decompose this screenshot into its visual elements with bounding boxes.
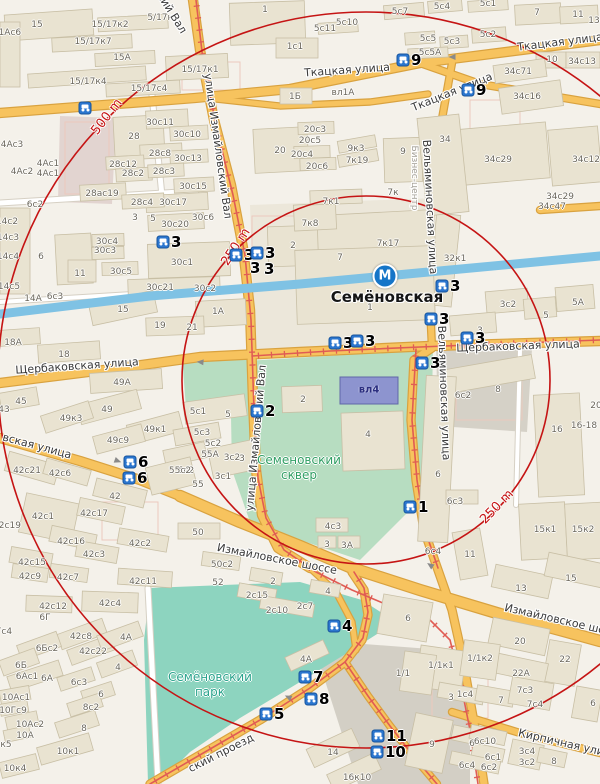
building-number-label: 13 [588, 16, 599, 26]
bus-stop-number: 2 [265, 402, 275, 420]
bus-icon [461, 332, 474, 345]
bus-stop-number: 5 [274, 705, 284, 723]
building-number-label: 20с3 [304, 125, 326, 135]
bus-icon [251, 405, 264, 418]
building-number-label: 42с19 [0, 521, 21, 531]
highlighted-building-label: вл4 [359, 385, 380, 396]
building-number-label: 1 [367, 303, 373, 313]
building-number-label: 9 [400, 147, 406, 157]
building-number-label: 20 [514, 637, 525, 647]
building-number-label: 28с4 [131, 198, 153, 208]
building-number-label: 9к3 [348, 144, 365, 154]
building-number-label: 30с6 [192, 213, 214, 223]
building-number-label: 32к1 [444, 254, 467, 264]
building-number-label: 1с4 [457, 690, 473, 700]
street-name-label: Ткацкая улица [304, 61, 391, 80]
building-number-label: 49 [101, 405, 112, 415]
building-number-label: 3 [239, 454, 245, 464]
oneway-arrow-icon [425, 561, 434, 570]
building-number-label: 6А [41, 674, 53, 684]
building-number-label: 42 [109, 492, 120, 502]
building-number-label: 10 [546, 55, 557, 65]
building-number-label: 5 [543, 311, 549, 321]
building-number-label: 5с2 [205, 439, 221, 449]
bus-stop-number: 3 [265, 244, 275, 262]
building-number-label: 1с1 [287, 42, 303, 52]
building-number-label: 28с2 [122, 169, 144, 179]
building-number-label: 4А [120, 633, 132, 643]
oneway-arrow-icon [114, 457, 123, 465]
bus-icon [372, 730, 385, 743]
distance-ring-label: 500 m [88, 96, 125, 138]
oneway-arrow-icon [284, 693, 293, 701]
metro-station-name: Семёновская [331, 288, 444, 306]
building-number-label: 42с16 [57, 537, 85, 547]
building-number-label: 43 [0, 405, 10, 415]
building-number-label: 55А [201, 450, 219, 460]
building-number-label: 6с2 [481, 763, 497, 773]
bus-stop-number: 3 [365, 332, 375, 350]
bus-stop-number: 9 [411, 51, 421, 69]
street-name-label: ский проезд [186, 731, 256, 775]
building-number-label: 10Ас2 [16, 720, 44, 730]
bus-stop-number: 3 [264, 260, 274, 278]
building-number-label: 6с3 [71, 678, 87, 688]
building-number-label: 15 [565, 574, 576, 584]
bus-stop-number: 3 [450, 277, 460, 295]
building-number-label: 15А [113, 53, 131, 63]
building-number-label: 4Ас3 [1, 140, 24, 150]
building-number-label: 34с47 [538, 202, 566, 212]
building-number-label: 16-18 [571, 421, 597, 431]
street-name-label: Щербаковская улица [15, 355, 139, 377]
bus-icon [230, 249, 243, 262]
bus-icon [305, 693, 318, 706]
street-name-label: Вельяминовская улица [420, 139, 440, 274]
building-number-label: 15/17с4 [131, 84, 168, 94]
building-number-label: 50с2 [211, 560, 233, 570]
street-name-label: Бизнес-центр [409, 146, 419, 211]
building-number-label: 42с1 [32, 512, 54, 522]
bus-stop-number: 10 [385, 743, 406, 761]
building-number-label: 3А [341, 541, 353, 551]
building-number-label: 6с10 [474, 737, 496, 747]
building-number-label: 10к4 [4, 764, 27, 774]
building-number-label: 10к1 [57, 747, 80, 757]
building-number-label: 4 [325, 587, 331, 597]
building-number-label: 30с3 [94, 246, 116, 256]
street-name-label: Измайловское шоссе [503, 601, 600, 641]
building-number-label: 7с3 [517, 686, 533, 696]
building-number-label: 7к19 [346, 156, 369, 166]
oneway-arrow-icon [196, 359, 203, 366]
bus-stop-number: 6 [137, 469, 147, 487]
bus-icon [124, 456, 137, 469]
building-number-label: 2 [300, 395, 306, 405]
building-number-label: 6с1 [485, 753, 501, 763]
bus-stop-number: 3 [430, 354, 440, 372]
building-number-label: 2 [270, 577, 276, 587]
building-number-label: 6 [435, 470, 441, 480]
building-number-label: 15/17к4 [69, 77, 106, 87]
area-name-label: Семеновскийсквер [257, 453, 341, 483]
building-number-label: 6Б [15, 661, 27, 671]
building-number-label: 3с2 [519, 758, 535, 768]
bus-icon [404, 501, 417, 514]
building-number-label: 15к2 [572, 525, 595, 535]
building-number-label: 4А [300, 655, 312, 665]
oneway-arrow-icon [449, 54, 456, 60]
bus-icon [123, 472, 136, 485]
building-number-label: 45 [15, 397, 26, 407]
bus-stop-number: 9 [476, 81, 486, 99]
building-number-label: 30с13 [174, 154, 202, 164]
building-number-label: 1А [212, 307, 224, 317]
building-number-label: 14с3 [0, 233, 19, 243]
building-number-label: 6 [590, 699, 596, 709]
building-number-label: 4Ас1 [37, 169, 60, 179]
building-number-label: 34с12 [572, 155, 600, 165]
building-number-label: 11Ас6 [0, 28, 21, 38]
building-number-label: 4 [115, 663, 121, 673]
building-number-label: 7 [534, 8, 540, 18]
building-number-label: 5с3 [194, 428, 210, 438]
building-number-label: 30с2 [194, 284, 216, 294]
building-number-label: 28 [128, 132, 139, 142]
building-number-label: 6 [38, 252, 44, 262]
building-number-label: 14 [327, 748, 338, 758]
street-name-label: Ткацкая улица [517, 30, 600, 53]
building-number-label: 11 [74, 269, 85, 279]
building-number-label: 14с4 [0, 252, 19, 262]
bus-icon [351, 335, 364, 348]
bus-icon [299, 671, 312, 684]
bus-icon [329, 337, 342, 350]
building-number-label: 55с2 [169, 466, 191, 476]
building-number-label: 18А [4, 338, 22, 348]
building-number-label: 1/1 [396, 669, 410, 679]
building-number-label: 7к17 [377, 239, 400, 249]
building-number-label: 1/1к1 [428, 661, 454, 671]
building-number-label: 28с3 [153, 167, 175, 177]
building-number-label: 34с29 [484, 155, 512, 165]
building-number-label: 8 [81, 724, 87, 734]
street-name-label: улица Измайловский Вал [201, 72, 234, 219]
building-number-label: 42с3 [83, 550, 105, 560]
building-number-label: 3 [324, 540, 330, 550]
building-number-label: 49с9 [107, 436, 129, 446]
bus-icon [260, 708, 273, 721]
building-number-label: 34с16 [513, 92, 541, 102]
bus-icon [251, 247, 264, 260]
building-number-label: 30с15 [179, 182, 207, 192]
bus-stop-number: 8 [319, 690, 329, 708]
building-number-label: 49А [113, 378, 131, 388]
building-number-label: 5с7 [392, 7, 408, 17]
building-number-label: 10Гс9 [0, 706, 27, 716]
building-number-label: 15к1 [534, 525, 557, 535]
building-number-label: 7к8 [302, 219, 319, 229]
building-number-label: 6с4 [459, 761, 475, 771]
building-number-label: 30с11 [146, 118, 174, 128]
building-number-label: 14с5 [0, 282, 20, 292]
building-number-label: 6 [98, 690, 104, 700]
building-number-label: 30с10 [173, 130, 201, 140]
building-number-label: 42с2 [129, 539, 151, 549]
building-number-label: 55 [192, 480, 203, 490]
building-number-label: 42с4 [99, 599, 121, 609]
building-number-label: 42с7 [57, 573, 79, 583]
street-name-label: улица Измайловский Вал [243, 364, 269, 511]
building-number-label: 28с8 [149, 149, 171, 159]
building-number-label: 5 [150, 214, 156, 224]
distance-ring-label: 250 m [477, 487, 517, 527]
building-number-label: 4Ас2 [11, 167, 34, 177]
building-number-label: 42с15 [18, 558, 46, 568]
building-number-label: 16к10 [343, 773, 371, 783]
building-number-label: 2с7 [297, 602, 313, 612]
building-number-label: 18 [58, 350, 69, 360]
building-number-label: 5 [225, 410, 231, 420]
building-number-label: 8 [495, 385, 501, 395]
building-number-label: 28ас19 [85, 189, 118, 199]
street-name-label: Измайловское шоссе [216, 541, 338, 577]
building-number-label: 15 [31, 20, 42, 30]
bus-stop-number: 3 [439, 310, 449, 328]
building-number-label: 10Ас1 [2, 693, 30, 703]
building-number-label: 42с11 [129, 577, 157, 587]
building-number-label: 49к1 [144, 425, 167, 435]
building-number-label: 2 [290, 241, 296, 251]
building-number-label: 6 [405, 614, 411, 624]
building-number-label: 6с3 [447, 497, 463, 507]
building-number-label: вл1А [332, 88, 355, 98]
building-number-label: 34 [439, 135, 450, 145]
building-number-label: 42с17 [80, 509, 108, 519]
building-number-label: 20с5 [299, 136, 321, 146]
building-number-label: 5с10 [336, 18, 358, 28]
building-number-label: 30с20 [161, 220, 189, 230]
building-number-label: 7 [337, 253, 343, 263]
building-number-label: 4 [365, 430, 371, 440]
building-number-label: 22 [559, 655, 570, 665]
building-number-label: к5 [0, 740, 11, 750]
building-number-label: 4с3 [325, 522, 341, 532]
building-number-label: 22А [512, 669, 530, 679]
building-number-label: 30с21 [146, 283, 174, 293]
building-number-label: 20 [274, 146, 285, 156]
building-number-label: 5А [572, 298, 584, 308]
building-number-label: 34с29 [546, 192, 574, 202]
building-number-label: 19 [154, 321, 165, 331]
bus-stop-number: 3 [171, 233, 181, 251]
building-number-label: 9 [429, 740, 435, 750]
map-canvas[interactable]: 1515/17к25/17к515/17к715А15/17к115/17к41… [0, 0, 600, 784]
street-name-label: Вельяминовская улица [435, 325, 453, 460]
building-number-label: 1 [262, 5, 268, 15]
bus-stop-number: 7 [313, 668, 323, 686]
building-number-label: 42с8 [70, 632, 92, 642]
building-number-label: 11 [572, 10, 583, 20]
metro-station-icon[interactable]: М [373, 264, 398, 289]
building-number-label: 5с4 [434, 2, 450, 12]
building-number-label: 30с17 [159, 198, 187, 208]
building-number-label: 49к3 [60, 414, 83, 424]
bus-icon [328, 620, 341, 633]
building-number-label: 3с2 [224, 453, 240, 463]
building-number-label: 20 [590, 401, 600, 411]
building-number-label: 34с13 [568, 57, 596, 67]
bus-icon [371, 746, 384, 759]
building-number-label: 5с11 [314, 24, 336, 34]
building-number-label: 30с5 [110, 267, 132, 277]
building-number-label: 14с2 [0, 217, 18, 227]
building-number-label: 52 [212, 578, 223, 588]
building-number-label: 5с1 [480, 0, 496, 9]
building-number-label: 14А [24, 294, 42, 304]
building-number-label: 7к [387, 188, 398, 198]
building-number-label: 20с4 [291, 150, 313, 160]
bus-stop-marker[interactable] [79, 102, 92, 115]
building-number-label: 6с3 [47, 292, 63, 302]
building-number-label: 15/17к2 [91, 20, 128, 30]
building-number-label: 1Б [289, 92, 301, 102]
building-number-label: 42с21 [13, 466, 41, 476]
bus-stop-number: 1 [418, 498, 428, 516]
building-number-label: 42с9 [19, 572, 41, 582]
building-number-label: 3 [448, 693, 454, 703]
building-number-label: 42с6 [49, 469, 71, 479]
building-number-label: 5с2 [480, 30, 496, 40]
bus-icon [416, 357, 429, 370]
building-number-label: 3с2 [500, 300, 516, 310]
building-number-label: 7 [498, 696, 504, 706]
building-number-label: 16 [551, 425, 562, 435]
bus-stop-number: 3 [475, 329, 485, 347]
building-number-label: 50 [192, 528, 203, 538]
building-number-label: 6Бс2 [36, 644, 59, 654]
building-number-label: 11 [464, 550, 475, 560]
bus-icon [425, 313, 438, 326]
building-number-label: Гс4 [0, 627, 12, 637]
building-number-label: 42с12 [39, 602, 67, 612]
building-number-label: 3 [132, 213, 138, 223]
building-number-label: 13 [515, 584, 526, 594]
building-number-label: 1/1к2 [467, 654, 493, 664]
building-number-label: 3с1 [215, 472, 231, 482]
building-number-label: 20с6 [306, 162, 328, 172]
building-number-label: 8с2 [83, 703, 99, 713]
map-labels-layer: 1515/17к25/17к515/17к715А15/17к115/17к41… [0, 0, 600, 784]
building-number-label: 42с22 [79, 647, 107, 657]
building-number-label: 2с10 [266, 606, 288, 616]
building-number-label: 2с15 [246, 591, 268, 601]
building-number-label: 7к1 [323, 197, 340, 207]
building-number-label: 5с5А [419, 48, 442, 58]
building-number-label: 7с4 [527, 700, 543, 710]
bus-icon [157, 236, 170, 249]
bus-icon [462, 84, 475, 97]
building-number-label: 5с3 [444, 37, 460, 47]
building-number-label: 15/17к7 [74, 37, 111, 47]
bus-icon [397, 54, 410, 67]
building-number-label: 30с1 [171, 258, 193, 268]
bus-stop-number: 4 [342, 617, 352, 635]
building-number-label: 6Ас1 [16, 672, 39, 682]
building-number-label: 6с4 [425, 547, 441, 557]
building-number-label: 34с71 [504, 67, 532, 77]
building-number-label: 3с4 [519, 747, 535, 757]
building-number-label: 6с2 [27, 200, 43, 210]
building-number-label: 5с1 [190, 407, 206, 417]
building-number-label: 4Ас1 [37, 159, 60, 169]
building-number-label: 15 [117, 305, 128, 315]
area-name-label: Семёновскийпарк [168, 670, 252, 700]
building-number-label: 10А [16, 731, 34, 741]
building-number-label: 21 [186, 323, 197, 333]
building-number-label: 8 [551, 757, 557, 767]
street-name-label: вская улица [1, 431, 73, 462]
building-number-label: 5с5 [420, 34, 436, 44]
building-number-label: 6Г [39, 613, 50, 623]
building-number-label: 6с2 [455, 391, 471, 401]
bus-icon [436, 280, 449, 293]
